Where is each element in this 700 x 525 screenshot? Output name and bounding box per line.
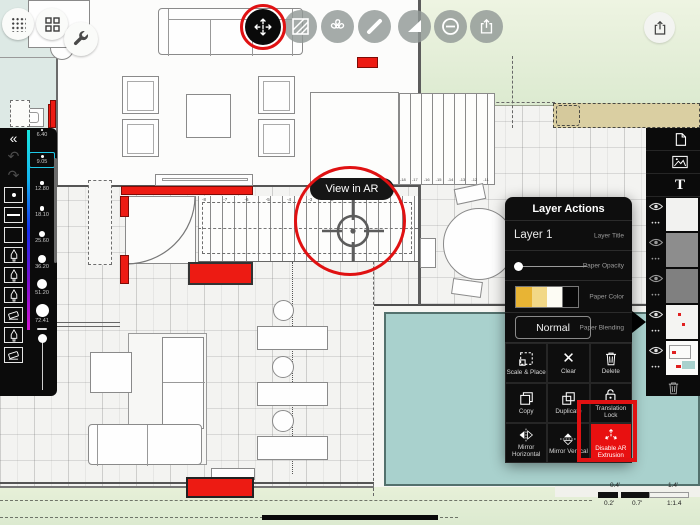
action-clear[interactable]: ✕ Clear bbox=[547, 343, 589, 383]
thumb-red-dot bbox=[682, 323, 685, 326]
layers-sidebar: T ••• ••• ••• ••• ••• bbox=[646, 128, 700, 396]
action-label: Delete bbox=[602, 368, 620, 375]
size-divider bbox=[37, 328, 47, 330]
fan-button[interactable] bbox=[321, 10, 354, 43]
pen-icon bbox=[9, 249, 19, 262]
lounger-1 bbox=[257, 326, 328, 350]
size-option-3[interactable]: 18.10 bbox=[29, 206, 55, 218]
view-in-ar-group: View in AR bbox=[280, 160, 420, 290]
line-glyph bbox=[7, 214, 20, 217]
tools-column: « ↶ ↷ bbox=[0, 128, 27, 396]
dashed-closet bbox=[88, 180, 112, 265]
size-label: 6.40 bbox=[37, 132, 48, 138]
fan-icon bbox=[328, 17, 347, 36]
paper-opacity-label: Paper Opacity bbox=[583, 262, 624, 269]
khaki-deck-square bbox=[556, 105, 580, 126]
pen-icon bbox=[9, 269, 19, 282]
layer-options-dots[interactable]: ••• bbox=[651, 365, 660, 371]
eraser-tool-2[interactable] bbox=[4, 347, 23, 363]
armchair-3 bbox=[258, 76, 295, 114]
scale-bar: 0.4' 1.4' 0.2' 0.7' 1:1.4 bbox=[590, 481, 700, 513]
dot-tool-button[interactable] bbox=[4, 187, 23, 203]
layer-thumbnail[interactable] bbox=[666, 341, 698, 375]
coffee-table bbox=[186, 94, 231, 138]
red-block-bottom bbox=[186, 477, 254, 498]
panel-header: Layer Actions bbox=[505, 197, 632, 221]
paper-blending-row: Normal Paper Blending bbox=[505, 313, 632, 343]
set-square-icon bbox=[406, 18, 423, 35]
layer-thumbnail[interactable] bbox=[666, 269, 698, 303]
layer-options-dots[interactable]: ••• bbox=[651, 257, 660, 263]
red-wall-top bbox=[121, 186, 253, 195]
scale-seg-1 bbox=[598, 492, 618, 498]
paper-color-label: Paper Color bbox=[589, 293, 624, 300]
pen-tool-4[interactable] bbox=[4, 327, 23, 343]
action-scale-place[interactable]: Scale & Place bbox=[505, 343, 547, 383]
pen-tool-1[interactable] bbox=[4, 247, 23, 263]
layer-options-dots[interactable]: ••• bbox=[651, 293, 660, 299]
scale-seg-2 bbox=[621, 492, 649, 498]
size-label: 36.20 bbox=[35, 264, 49, 270]
swatch-white[interactable] bbox=[547, 287, 562, 307]
size-option-1-selected[interactable]: 9.05 bbox=[29, 152, 55, 168]
set-square-button[interactable] bbox=[398, 10, 431, 43]
armchair-4 bbox=[258, 119, 295, 157]
armchair-seat bbox=[263, 124, 290, 154]
marker-icon bbox=[365, 17, 384, 36]
blend-mode-value: Normal bbox=[536, 322, 570, 334]
pen-tool-3[interactable] bbox=[4, 287, 23, 303]
action-delete[interactable]: Delete bbox=[590, 343, 632, 383]
paper-color-row: Paper Color bbox=[505, 281, 632, 313]
layer-row-1[interactable]: ••• bbox=[646, 197, 700, 232]
wrench-button[interactable] bbox=[64, 22, 98, 56]
dots-grid-icon bbox=[11, 17, 26, 32]
app-canvas: -18 -17 -16 -15 -14 -13 -12 -11 -10 -8 -… bbox=[0, 0, 700, 525]
page-icon bbox=[673, 132, 688, 147]
layer-thumbnail[interactable] bbox=[666, 233, 698, 267]
wrench-icon bbox=[72, 30, 90, 48]
swatch-gold[interactable] bbox=[516, 287, 532, 307]
eye-icon[interactable] bbox=[649, 238, 663, 247]
layer-row-2[interactable]: ••• bbox=[646, 233, 700, 268]
eraser-icon bbox=[7, 350, 20, 361]
lawn-black-bar bbox=[262, 515, 438, 520]
mirror-vertical-icon bbox=[560, 432, 576, 446]
opacity-slider-track[interactable] bbox=[517, 266, 587, 268]
disable-ar-annotation-rect bbox=[577, 400, 637, 462]
action-label: Mirror Horizontal bbox=[506, 444, 546, 458]
trash-icon bbox=[667, 381, 680, 395]
size-label: 18.10 bbox=[35, 212, 49, 218]
share-icon bbox=[478, 18, 495, 35]
window-dashed bbox=[10, 100, 30, 127]
action-label: Clear bbox=[561, 368, 576, 375]
size-option-4[interactable]: 25.60 bbox=[29, 231, 55, 244]
sizes-column: 6.40 9.05 12.80 18.10 25.60 36.20 51.20 … bbox=[29, 128, 55, 396]
scale-place-icon bbox=[518, 351, 534, 367]
side-table-sq bbox=[90, 352, 132, 393]
image-row[interactable] bbox=[646, 151, 700, 174]
armchair-seat bbox=[127, 124, 154, 154]
top-toolbar bbox=[0, 0, 700, 50]
panel-callout-arrow bbox=[632, 311, 646, 333]
layer-title-label: Layer Title bbox=[594, 232, 624, 239]
round-table-sm bbox=[273, 300, 294, 321]
red-strip-above-sidebar bbox=[50, 100, 56, 128]
lounger-2 bbox=[257, 382, 328, 406]
layer-options-dots[interactable]: ••• bbox=[651, 329, 660, 335]
clear-icon: ✕ bbox=[562, 351, 575, 366]
dots-grid-button[interactable] bbox=[2, 8, 34, 40]
layer-title-row[interactable]: Layer 1 Layer Title bbox=[505, 221, 632, 251]
left-tool-sidebar: « ↶ ↷ 6.40 9.05 12.80 18.10 25.60 36.20 … bbox=[0, 128, 57, 396]
line-tool-button[interactable] bbox=[4, 207, 23, 223]
scale-seg-3 bbox=[649, 492, 689, 498]
size-option-6[interactable]: 51.20 bbox=[29, 279, 55, 296]
layer-thumbnail[interactable] bbox=[666, 305, 698, 339]
layer-row-4[interactable]: ••• bbox=[646, 305, 700, 340]
thumb-plan-pool bbox=[682, 361, 695, 369]
armchair-1 bbox=[122, 76, 159, 114]
property-dash-v2 bbox=[512, 56, 513, 128]
layer-row-5[interactable]: ••• bbox=[646, 341, 700, 376]
size-label: 12.80 bbox=[35, 186, 49, 192]
console-cabinet bbox=[155, 174, 253, 186]
round-table-2 bbox=[272, 410, 294, 432]
action-label: Scale & Place bbox=[507, 369, 546, 376]
swatch-pale-gold[interactable] bbox=[532, 287, 547, 307]
armchair-2 bbox=[122, 119, 159, 157]
lounger-3 bbox=[257, 436, 328, 460]
eye-icon[interactable] bbox=[649, 202, 663, 211]
export-button[interactable] bbox=[644, 12, 675, 43]
size-label: 25.60 bbox=[35, 238, 49, 244]
red-block-stairs bbox=[188, 262, 253, 285]
wall-top-left-line bbox=[0, 57, 57, 58]
thumb-red-mark bbox=[676, 365, 681, 368]
ar-annotation-ring bbox=[240, 4, 286, 50]
size-option-0[interactable]: 6.40 bbox=[29, 129, 55, 138]
cushion-line bbox=[147, 425, 148, 466]
thumb-red-dot bbox=[678, 313, 681, 316]
dining-chair-2 bbox=[420, 238, 436, 268]
red-jamb-upper bbox=[120, 196, 129, 217]
panel-title: Layer Actions bbox=[532, 203, 604, 215]
eraser-icon bbox=[7, 310, 20, 321]
l-sofa-vertical bbox=[162, 337, 204, 429]
hatch-fill-button[interactable] bbox=[284, 10, 317, 43]
round-table-1 bbox=[272, 356, 294, 378]
size-option-5[interactable]: 36.20 bbox=[29, 255, 55, 270]
size-option-2[interactable]: 12.80 bbox=[29, 181, 55, 192]
red-mark-1 bbox=[357, 57, 378, 68]
size-slider-knob[interactable] bbox=[38, 334, 47, 343]
text-tool-row[interactable]: T bbox=[646, 174, 700, 197]
cushion-line bbox=[97, 425, 98, 466]
mirror-horizontal-icon bbox=[518, 428, 534, 442]
pen-icon bbox=[9, 329, 19, 342]
new-page-row[interactable] bbox=[646, 128, 700, 151]
scale-top-left: 0.4' bbox=[610, 482, 620, 489]
size-slider-track[interactable] bbox=[42, 338, 44, 390]
size-option-7[interactable]: 72.41 bbox=[29, 304, 55, 324]
duplicate-icon bbox=[561, 391, 576, 406]
layer-options-dots[interactable]: ••• bbox=[651, 221, 660, 227]
collapse-button[interactable]: « bbox=[10, 131, 18, 145]
eye-icon[interactable] bbox=[649, 346, 663, 355]
apps-grid-button[interactable] bbox=[36, 8, 68, 40]
action-mirror-horizontal[interactable]: Mirror Horizontal bbox=[505, 423, 547, 463]
paper-opacity-row: Paper Opacity bbox=[505, 251, 632, 281]
l-sofa-horizontal bbox=[88, 424, 202, 465]
export-share-icon bbox=[652, 20, 668, 36]
layer-row-3[interactable]: ••• bbox=[646, 269, 700, 304]
scale-bottom-left: 0.2' bbox=[604, 500, 614, 507]
layer-thumbnail[interactable] bbox=[666, 198, 698, 231]
image-icon bbox=[672, 155, 688, 169]
text-tool-icon: T bbox=[675, 177, 685, 194]
lawn-dash-1 bbox=[0, 500, 592, 501]
action-copy[interactable]: Copy bbox=[505, 383, 547, 423]
eraser-tool-1[interactable] bbox=[4, 307, 23, 323]
swatch-black[interactable] bbox=[562, 287, 578, 307]
pen-tool-2[interactable] bbox=[4, 267, 23, 283]
scale-top-right: 1.4' bbox=[668, 482, 678, 489]
copy-icon bbox=[519, 391, 534, 406]
size-label: 51.20 bbox=[35, 290, 49, 296]
delete-layer-row[interactable] bbox=[646, 380, 700, 396]
trash-icon bbox=[604, 351, 618, 366]
sidebar-scrollbar[interactable] bbox=[54, 158, 57, 263]
size-label: 9.05 bbox=[37, 159, 48, 165]
cabinet-inner bbox=[162, 178, 248, 181]
armchair-seat bbox=[127, 81, 154, 111]
marker-button[interactable] bbox=[358, 10, 391, 43]
red-jamb-lower bbox=[120, 255, 129, 284]
cushion-line bbox=[163, 382, 205, 383]
subtract-circle-button[interactable] bbox=[434, 10, 467, 43]
thumb-red-mark bbox=[672, 351, 676, 354]
scale-ratio: 1:1.4 bbox=[667, 500, 681, 507]
size-label: 72.41 bbox=[35, 318, 49, 324]
opacity-slider-knob[interactable] bbox=[514, 262, 523, 271]
paper-blending-label: Paper Blending bbox=[580, 324, 624, 331]
eye-icon[interactable] bbox=[649, 274, 663, 283]
hatch-fill-icon bbox=[292, 18, 309, 35]
eye-icon[interactable] bbox=[649, 310, 663, 319]
door-swing-arc bbox=[125, 196, 197, 265]
armchair-seat bbox=[263, 81, 290, 111]
apps-grid-icon bbox=[45, 17, 60, 32]
undo-button[interactable]: ↶ bbox=[8, 149, 20, 164]
redo-button[interactable]: ↷ bbox=[8, 168, 20, 183]
layer-name: Layer 1 bbox=[514, 229, 552, 241]
fill-tool-button[interactable] bbox=[4, 227, 23, 243]
dot-glyph bbox=[12, 193, 16, 197]
action-label: Copy bbox=[519, 408, 534, 415]
paper-color-swatches[interactable] bbox=[515, 286, 579, 308]
scale-bottom-mid: 0.7' bbox=[632, 500, 642, 507]
subtract-circle-icon bbox=[441, 17, 460, 36]
ar-annotation-circle bbox=[294, 166, 406, 276]
pen-icon bbox=[9, 289, 19, 302]
share-button[interactable] bbox=[470, 10, 503, 43]
